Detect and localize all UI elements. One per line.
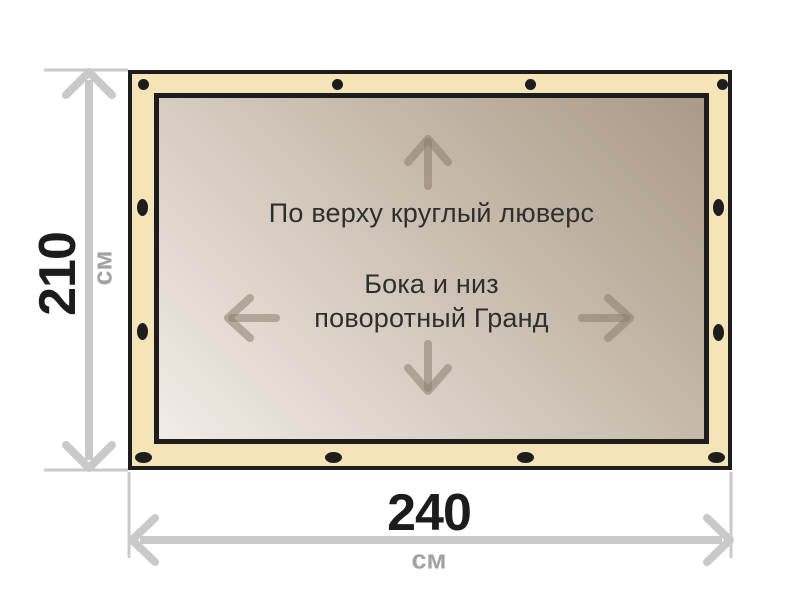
height-dimension-value: 210	[28, 232, 88, 316]
top-edge-note: По верху круглый люверс	[154, 196, 709, 230]
grommet-oval-icon	[325, 452, 342, 463]
height-dimension-unit: см	[88, 251, 119, 286]
width-dimension-unit: см	[412, 545, 447, 576]
grommet-oval-icon	[135, 452, 152, 463]
grommet-oval-icon	[517, 452, 534, 463]
center-note-line2: поворотный Гранд	[154, 301, 709, 335]
grommet-oval-icon	[137, 323, 148, 340]
grommet-oval-icon	[137, 199, 148, 216]
banner-size-diagram: По верху круглый люверс Бока и низ повор…	[0, 0, 800, 600]
grommet-oval-icon	[713, 324, 724, 341]
grommet-round-icon	[525, 79, 536, 90]
top-edge-note-text: По верху круглый люверс	[154, 196, 709, 230]
grommet-round-icon	[717, 79, 728, 90]
grommet-oval-icon	[713, 199, 724, 216]
center-note-line1: Бока и низ	[154, 267, 709, 301]
grommet-round-icon	[332, 79, 343, 90]
center-note: Бока и низ поворотный Гранд	[154, 267, 709, 335]
grommet-oval-icon	[708, 452, 725, 463]
width-dimension-value: 240	[387, 483, 471, 543]
grommet-round-icon	[138, 79, 149, 90]
